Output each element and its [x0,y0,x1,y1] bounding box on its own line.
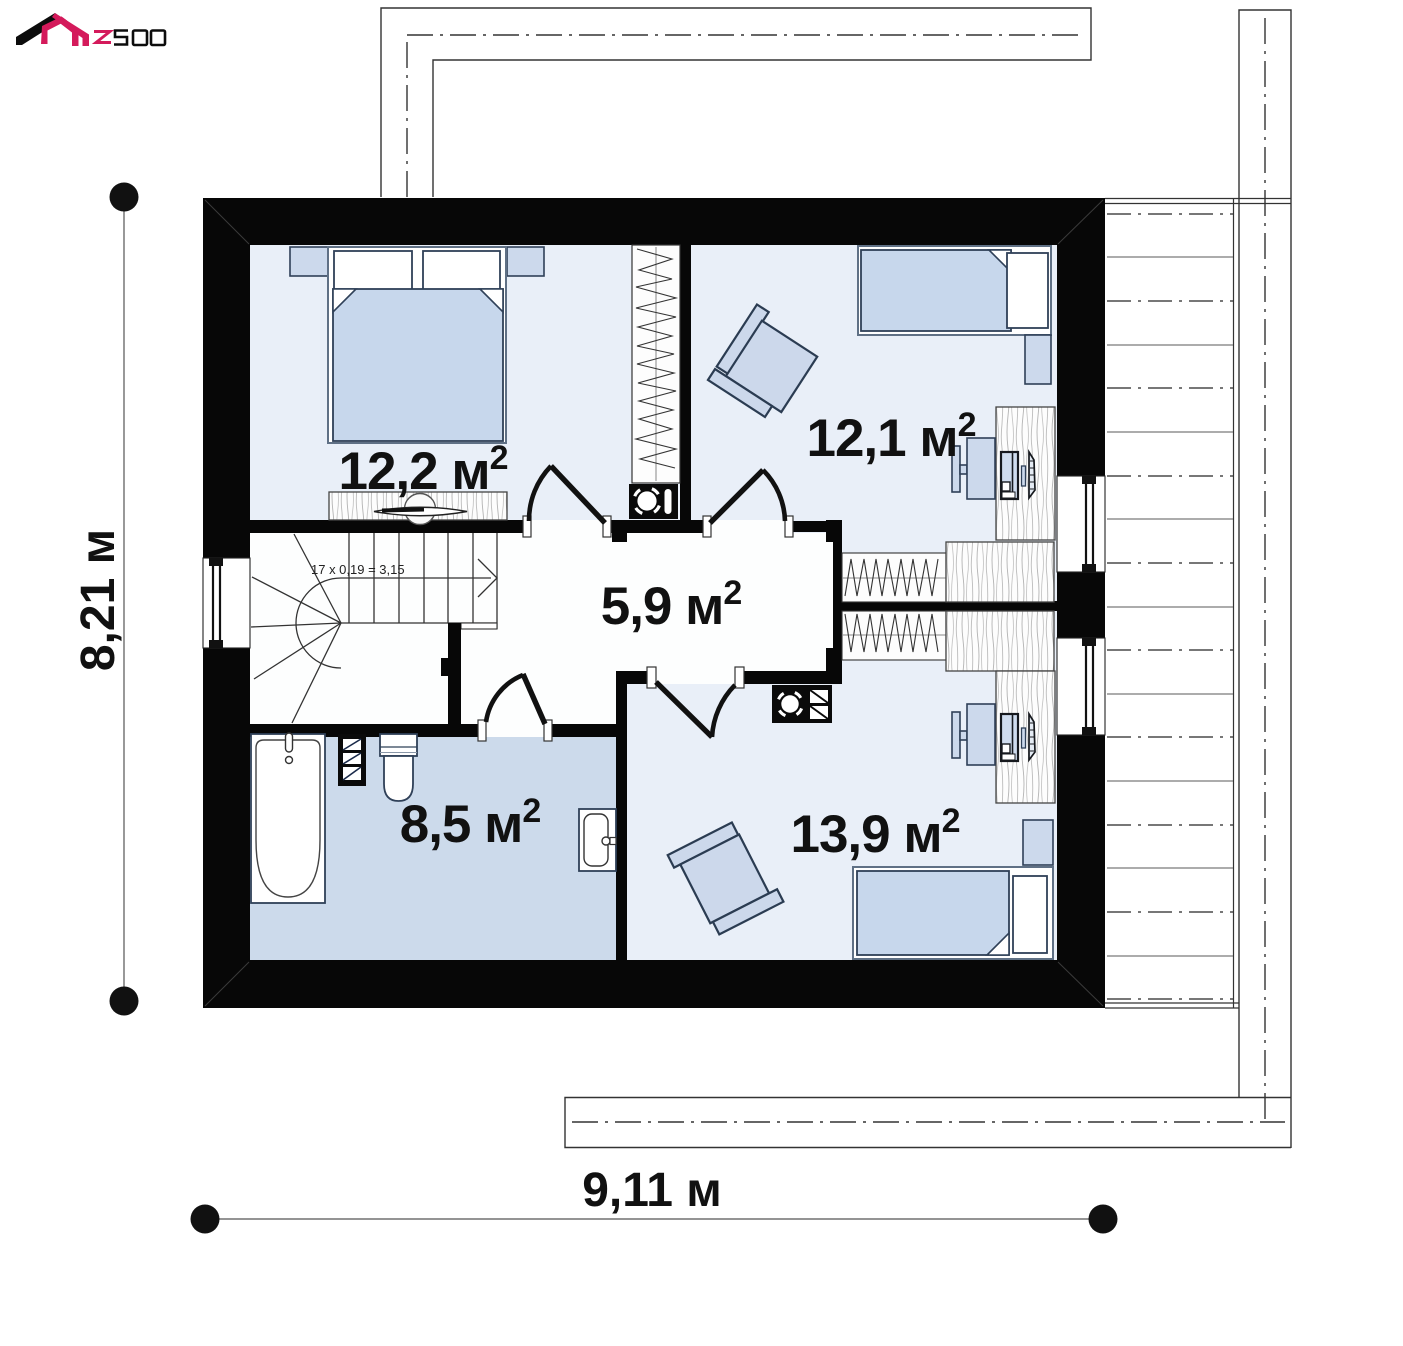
svg-text:9,11 м: 9,11 м [582,1164,722,1217]
svg-text:5,9 м2: 5,9 м2 [601,574,742,636]
svg-text:12,2 м2: 12,2 м2 [338,439,507,501]
svg-text:17 x 0,19 = 3,15: 17 x 0,19 = 3,15 [311,562,405,577]
svg-text:8,21 м: 8,21 м [72,529,125,671]
svg-text:12,1 м2: 12,1 м2 [806,406,975,468]
svg-text:8,5 м2: 8,5 м2 [400,792,541,854]
svg-text:13,9 м2: 13,9 м2 [790,802,959,864]
